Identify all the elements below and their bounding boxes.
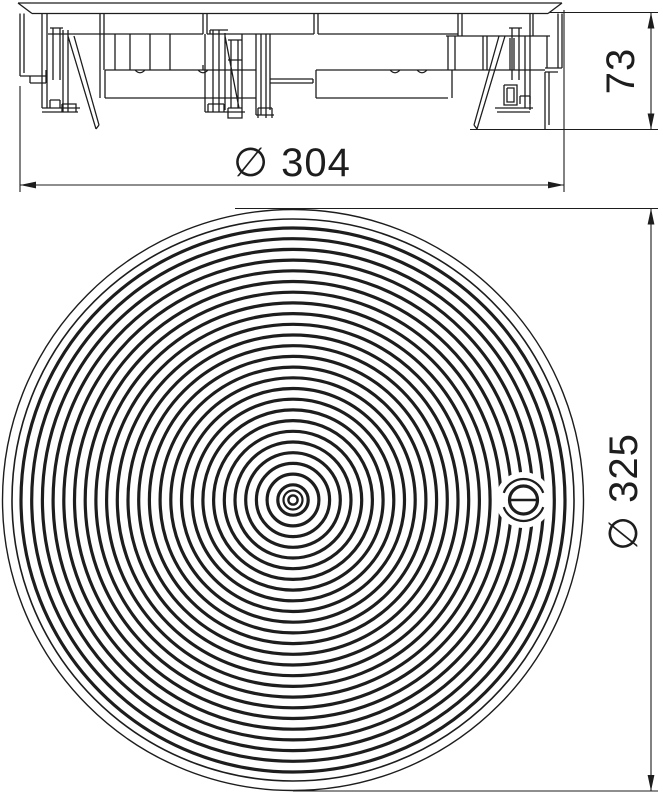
slotted-screw-head-icon xyxy=(496,472,552,528)
dim-width-label: ∅ 304 xyxy=(233,141,351,185)
left-latch xyxy=(42,14,99,130)
plan-view-cover xyxy=(3,210,584,791)
flange-outline xyxy=(18,3,562,14)
dim-diameter-arrow-top xyxy=(648,209,655,225)
drawing-canvas: ∅ 304 73 ∅ 325 xyxy=(0,0,663,794)
central-latch xyxy=(205,30,245,118)
central-channel xyxy=(256,34,313,118)
technical-drawing-page: ∅ 304 73 ∅ 325 xyxy=(0,0,663,794)
dim-diameter-arrow-bottom xyxy=(648,775,655,791)
dim-width-arrow-left xyxy=(20,182,36,189)
dim-diameter-label: ∅ 325 xyxy=(602,433,646,551)
upper-shelf xyxy=(48,34,550,36)
dim-height-label: 73 xyxy=(599,48,643,95)
side-elevation-view xyxy=(18,3,562,129)
dim-height-arrow-bottom xyxy=(648,114,655,130)
dim-width-arrow-right xyxy=(548,182,564,189)
body-band-right xyxy=(316,70,545,98)
left-upper-blocks xyxy=(100,34,170,98)
outer-walls xyxy=(20,14,562,130)
dim-height-arrow-top xyxy=(648,13,655,29)
